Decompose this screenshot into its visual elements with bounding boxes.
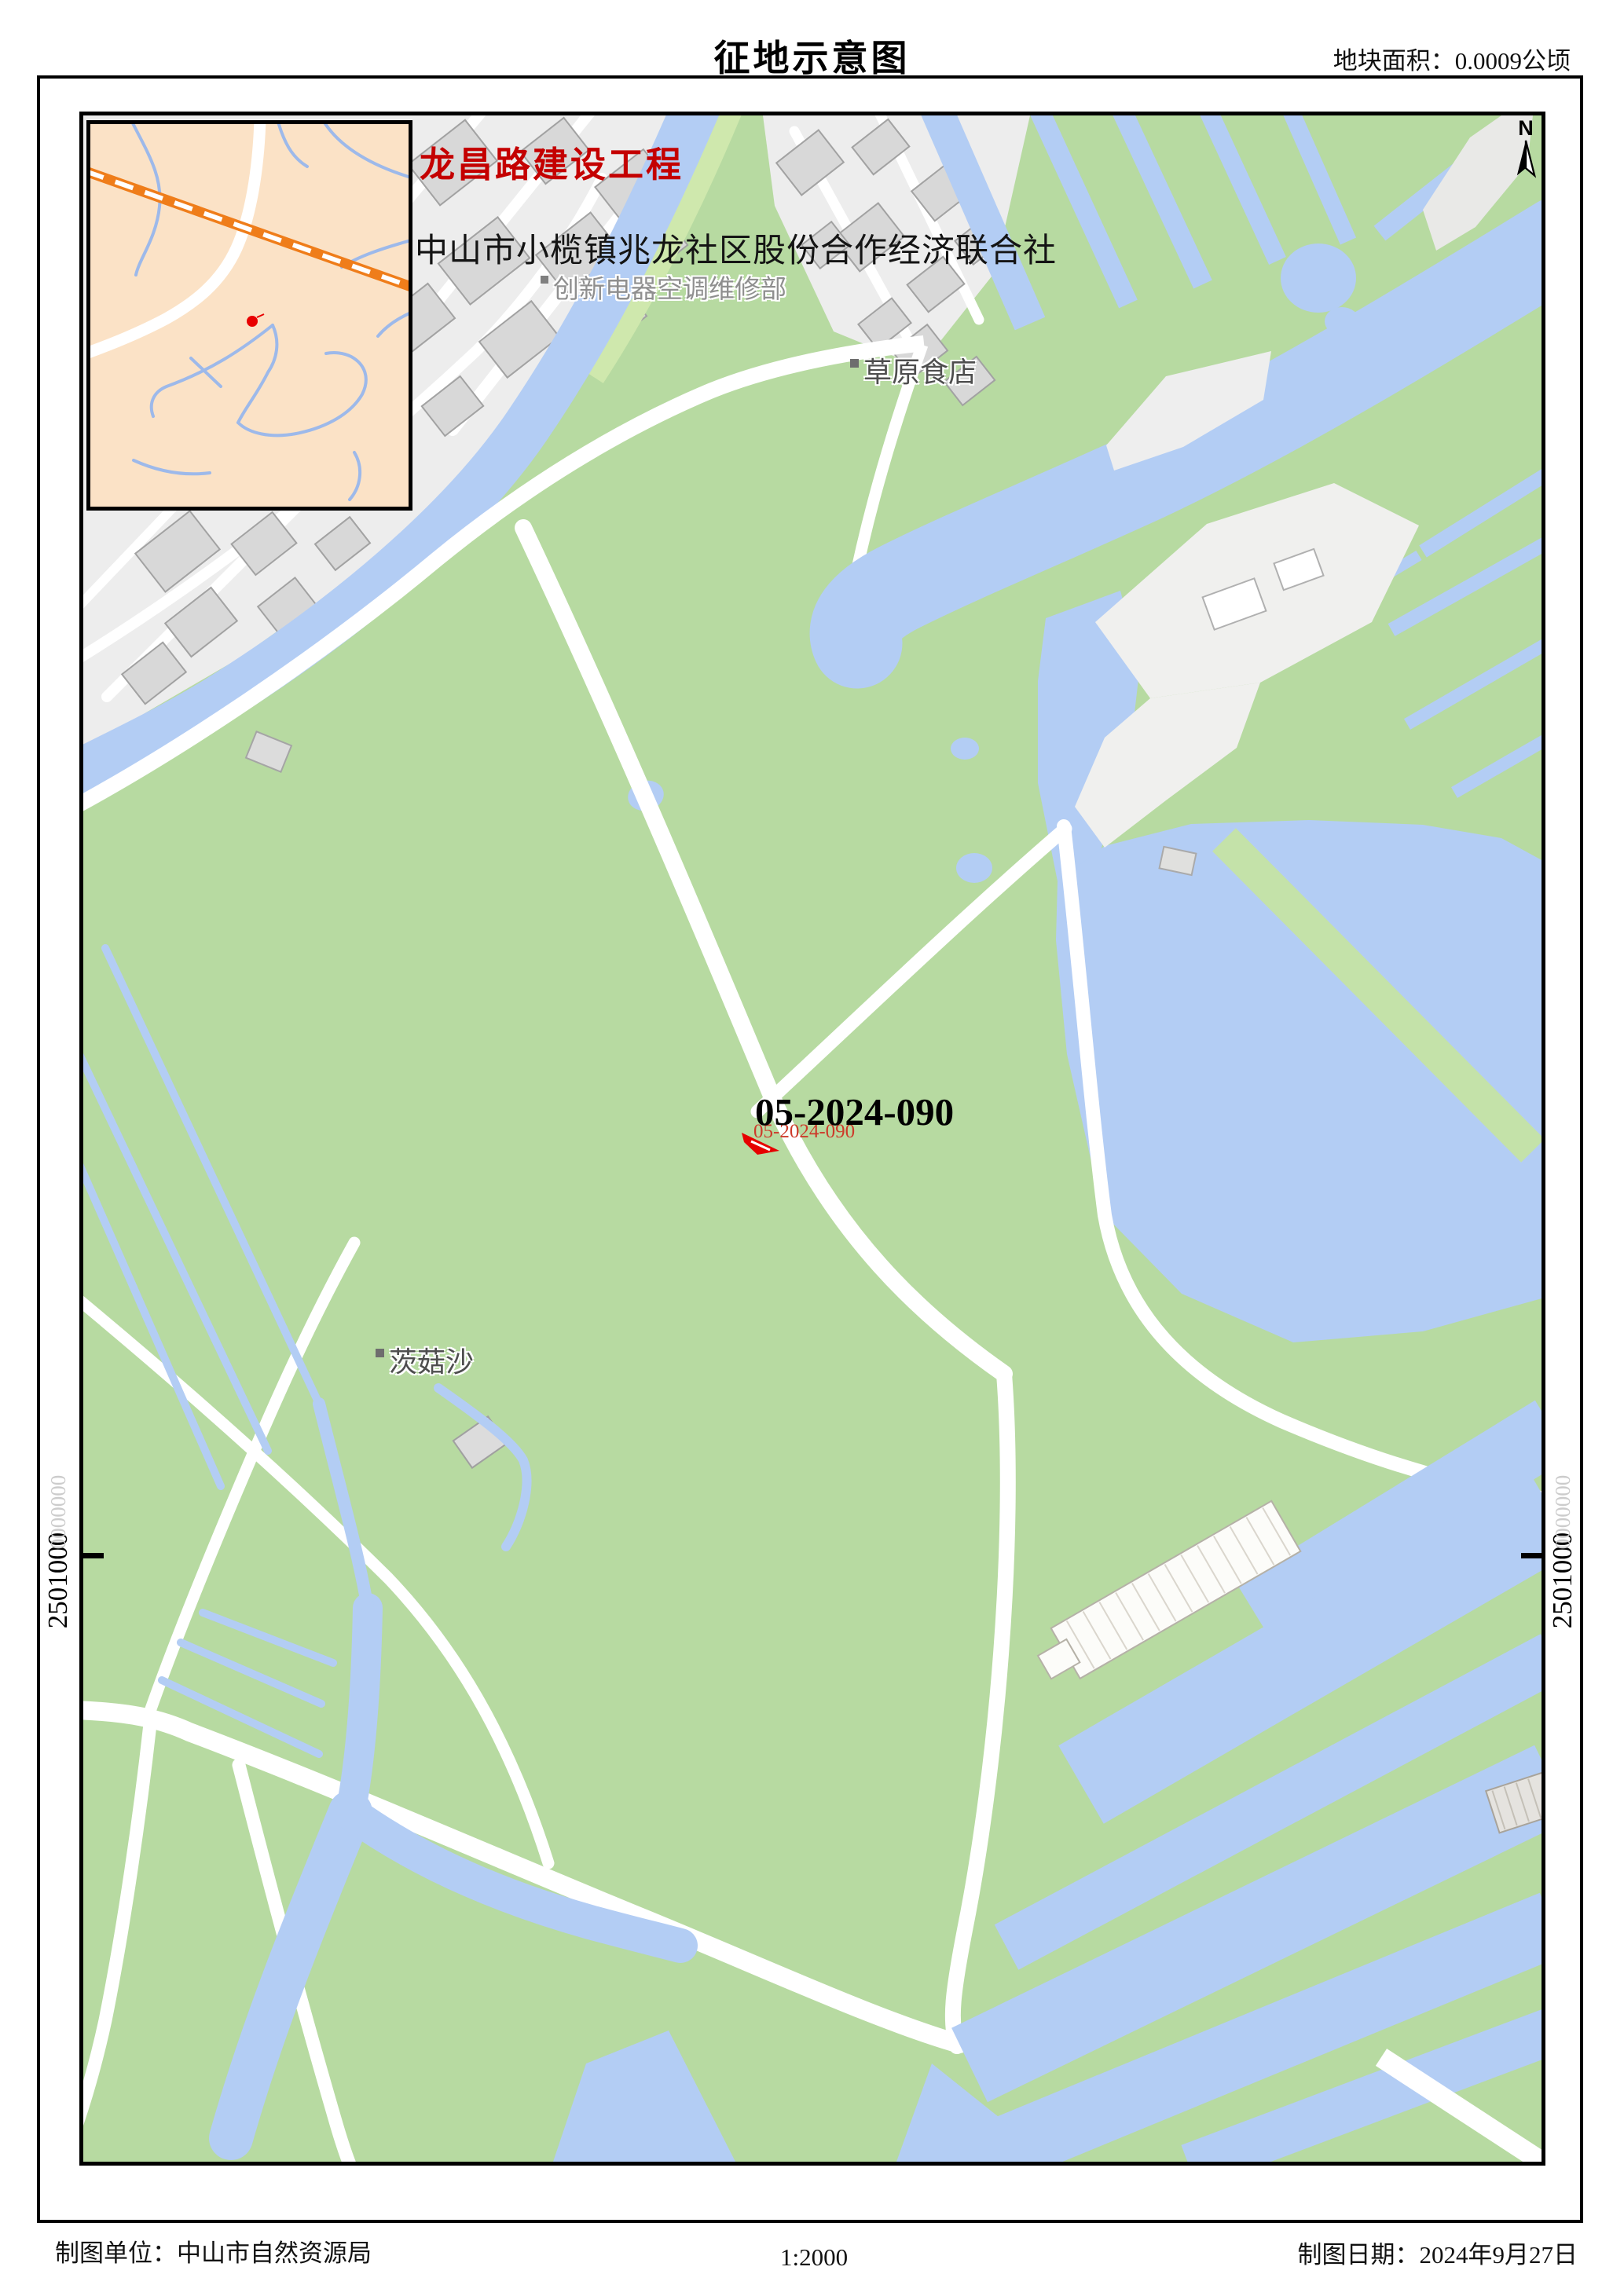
inset-graphic xyxy=(90,124,409,507)
organization-label: 中山市小榄镇兆龙社区股份合作经济联合社 xyxy=(415,224,1057,272)
poi-label-text: 草原食店 xyxy=(863,356,977,388)
poi-label-text: 茨菇沙 xyxy=(389,1346,474,1378)
inset-locator-map xyxy=(86,120,412,511)
grid-tick-left xyxy=(83,1553,104,1558)
poi-label-repair-shop: 创新电器空调维修部 xyxy=(541,268,786,306)
grid-tick-right xyxy=(1521,1553,1542,1558)
land-acquisition-sheet: 征地示意图 地块面积：0.0009公顷 2501000 0000000 2501… xyxy=(0,0,1624,2296)
poi-marker-icon xyxy=(376,1349,384,1357)
footer-agency: 制图单位：中山市自然资源局 xyxy=(55,2233,372,2269)
small-pond xyxy=(956,853,992,883)
poi-marker-icon xyxy=(541,276,548,284)
north-arrow: N xyxy=(1502,117,1545,184)
pond-blob xyxy=(1281,244,1356,313)
footer-scale: 1:2000 xyxy=(780,2243,848,2272)
small-pond xyxy=(951,738,979,760)
poi-marker-icon xyxy=(850,359,859,368)
project-name-label: 龙昌路建设工程 xyxy=(420,136,684,187)
north-arrow-icon xyxy=(1510,139,1542,180)
map-canvas: N 龙昌路建设工程 中山市小榄镇兆龙社区股份合作经济联合社 创新电器空调维修部 … xyxy=(79,112,1545,2166)
footer-date: 制图日期：2024年9月27日 xyxy=(1298,2235,1578,2270)
parcel-area-label: 地块面积：0.0009公顷 xyxy=(1333,41,1571,76)
parcel-id-label: 05-2024-090 xyxy=(755,1089,954,1134)
north-label: N xyxy=(1502,117,1545,139)
grid-y-label-right-faint: 0000000 xyxy=(1547,1445,1578,1579)
poi-label-village: 茨菇沙 xyxy=(376,1339,474,1380)
pond-blob-small xyxy=(1325,307,1359,335)
poi-label-restaurant: 草原食店 xyxy=(850,350,977,390)
poi-label-text: 创新电器空调维修部 xyxy=(553,274,786,303)
grid-y-label-left-faint: 0000000 xyxy=(42,1445,74,1579)
